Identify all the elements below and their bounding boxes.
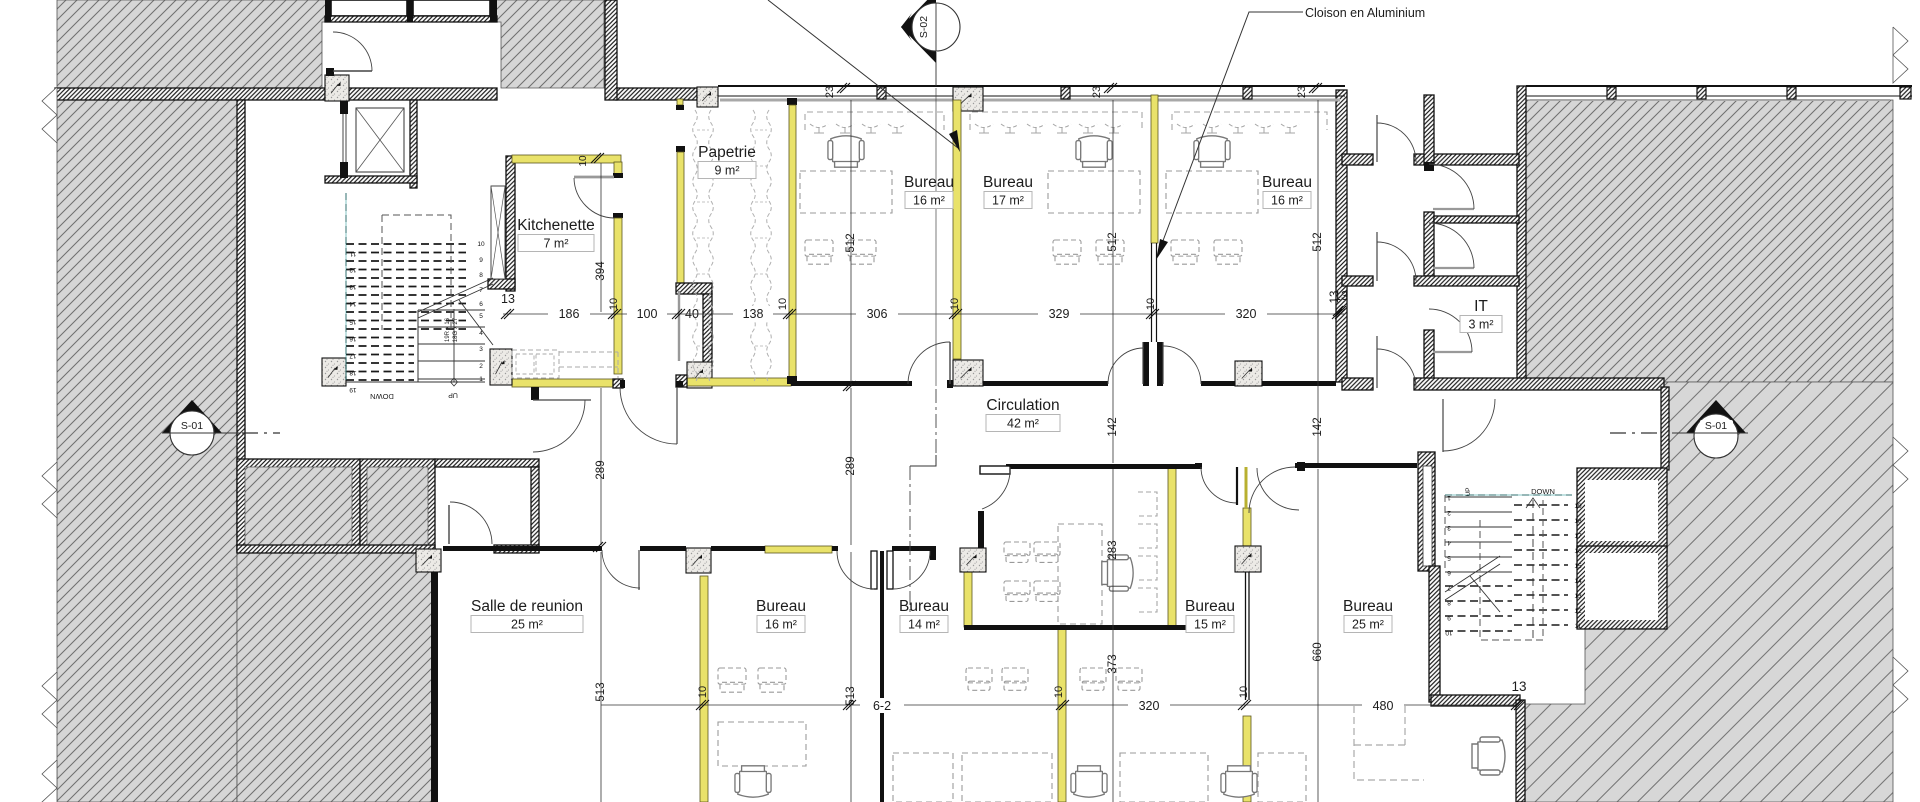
svg-text:283: 283 xyxy=(1107,540,1119,559)
svg-text:Bureau: Bureau xyxy=(1185,598,1235,615)
svg-text:660: 660 xyxy=(1312,642,1324,661)
svg-text:10: 10 xyxy=(1145,298,1157,310)
svg-text:S-02: S-02 xyxy=(918,16,930,38)
svg-text:11: 11 xyxy=(349,250,356,257)
svg-text:7: 7 xyxy=(1447,584,1451,591)
svg-text:16 m²: 16 m² xyxy=(765,618,797,632)
svg-text:10: 10 xyxy=(777,298,789,310)
svg-text:23: 23 xyxy=(824,86,836,98)
svg-text:7 m²: 7 m² xyxy=(544,237,569,251)
svg-text:5: 5 xyxy=(1447,554,1451,561)
svg-text:25 m²: 25 m² xyxy=(1352,618,1384,632)
svg-text:18G x 27: 18G x 27 xyxy=(453,317,459,342)
svg-text:Bureau: Bureau xyxy=(1343,598,1393,615)
svg-text:5: 5 xyxy=(479,313,483,320)
svg-text:16: 16 xyxy=(1574,548,1582,555)
svg-text:Bureau: Bureau xyxy=(983,174,1033,191)
svg-text:Bureau: Bureau xyxy=(899,598,949,615)
svg-text:4: 4 xyxy=(1447,539,1451,546)
svg-text:16 m²: 16 m² xyxy=(913,194,945,208)
svg-text:S-01: S-01 xyxy=(1705,420,1727,432)
svg-text:18: 18 xyxy=(1574,518,1582,525)
svg-text:Kitchenette: Kitchenette xyxy=(517,217,595,234)
svg-text:UP: UP xyxy=(448,391,458,398)
svg-text:142: 142 xyxy=(1107,417,1119,436)
svg-text:289: 289 xyxy=(845,456,857,475)
svg-text:13: 13 xyxy=(349,283,357,290)
svg-text:Circulation: Circulation xyxy=(986,397,1059,414)
svg-text:Cloison en Aluminium: Cloison en Aluminium xyxy=(1305,6,1425,20)
svg-text:320: 320 xyxy=(1139,699,1160,713)
svg-text:3: 3 xyxy=(479,346,483,353)
svg-text:15: 15 xyxy=(349,318,357,325)
svg-text:2: 2 xyxy=(1447,509,1451,516)
svg-text:2: 2 xyxy=(479,363,483,370)
svg-text:S-01: S-01 xyxy=(181,420,203,432)
svg-text:14 m²: 14 m² xyxy=(908,618,940,632)
svg-text:4: 4 xyxy=(479,330,483,337)
svg-text:DOWN: DOWN xyxy=(1531,487,1555,496)
svg-text:19R x 16: 19R x 16 xyxy=(445,317,451,342)
svg-text:Bureau: Bureau xyxy=(756,598,806,615)
svg-text:Bureau: Bureau xyxy=(1262,174,1312,191)
svg-text:186: 186 xyxy=(559,307,580,321)
svg-text:12: 12 xyxy=(1574,608,1582,615)
svg-text:9: 9 xyxy=(479,257,483,264)
svg-text:512: 512 xyxy=(1107,232,1119,251)
svg-text:13: 13 xyxy=(1511,679,1526,694)
svg-text:14: 14 xyxy=(349,300,357,307)
svg-text:480: 480 xyxy=(1373,699,1394,713)
svg-text:10: 10 xyxy=(608,298,620,310)
svg-text:Papetrie: Papetrie xyxy=(698,144,756,161)
svg-text:18: 18 xyxy=(349,369,357,376)
svg-text:320: 320 xyxy=(1236,307,1257,321)
svg-text:1: 1 xyxy=(479,376,483,383)
svg-text:40: 40 xyxy=(685,307,699,321)
svg-text:138: 138 xyxy=(743,307,764,321)
svg-text:512: 512 xyxy=(845,233,857,252)
svg-text:3 m²: 3 m² xyxy=(1469,318,1494,332)
svg-text:3: 3 xyxy=(1447,524,1451,531)
svg-text:142: 142 xyxy=(1312,417,1324,436)
svg-text:IT: IT xyxy=(1474,298,1488,315)
svg-text:13: 13 xyxy=(1574,593,1582,600)
svg-text:10: 10 xyxy=(949,298,961,310)
svg-text:10: 10 xyxy=(1238,686,1250,698)
svg-text:394: 394 xyxy=(595,261,607,281)
svg-text:9: 9 xyxy=(1447,614,1451,621)
svg-text:Salle de reunion: Salle de reunion xyxy=(471,598,583,615)
svg-text:513: 513 xyxy=(595,682,607,701)
svg-text:16: 16 xyxy=(349,335,357,342)
svg-text:23: 23 xyxy=(1091,86,1103,98)
svg-text:8: 8 xyxy=(1447,599,1451,606)
svg-text:23: 23 xyxy=(1296,86,1308,98)
svg-text:373: 373 xyxy=(1107,654,1119,673)
svg-text:10: 10 xyxy=(477,241,485,248)
svg-text:10: 10 xyxy=(578,155,589,167)
svg-text:DOWN: DOWN xyxy=(370,392,394,401)
svg-text:8: 8 xyxy=(479,272,483,279)
svg-text:7: 7 xyxy=(479,287,483,294)
svg-text:17: 17 xyxy=(349,352,357,359)
svg-text:10: 10 xyxy=(1053,686,1065,698)
svg-text:15 m²: 15 m² xyxy=(1194,618,1226,632)
svg-text:13: 13 xyxy=(501,292,515,306)
svg-text:19: 19 xyxy=(1574,503,1582,510)
svg-text:9 m²: 9 m² xyxy=(715,164,740,178)
svg-text:12: 12 xyxy=(349,266,357,273)
svg-text:14: 14 xyxy=(1574,578,1582,585)
svg-text:Bureau: Bureau xyxy=(904,174,954,191)
svg-text:512: 512 xyxy=(1312,232,1324,251)
svg-text:329: 329 xyxy=(1049,307,1070,321)
svg-text:17 m²: 17 m² xyxy=(992,194,1024,208)
svg-text:17: 17 xyxy=(1574,533,1582,540)
svg-text:10: 10 xyxy=(1445,629,1453,636)
svg-text:6: 6 xyxy=(479,301,483,308)
svg-text:306: 306 xyxy=(867,307,888,321)
svg-text:11: 11 xyxy=(1575,623,1582,630)
svg-text:6: 6 xyxy=(1447,569,1451,576)
svg-text:16 m²: 16 m² xyxy=(1271,194,1303,208)
svg-text:19: 19 xyxy=(349,386,357,393)
svg-text:10: 10 xyxy=(697,686,709,698)
svg-text:6-2: 6-2 xyxy=(873,699,891,713)
svg-text:42 m²: 42 m² xyxy=(1007,417,1039,431)
svg-text:15: 15 xyxy=(1574,563,1582,570)
svg-text:100: 100 xyxy=(637,307,658,321)
svg-text:25 m²: 25 m² xyxy=(511,618,543,632)
svg-text:13: 13 xyxy=(1329,291,1341,304)
svg-text:289: 289 xyxy=(595,460,607,479)
